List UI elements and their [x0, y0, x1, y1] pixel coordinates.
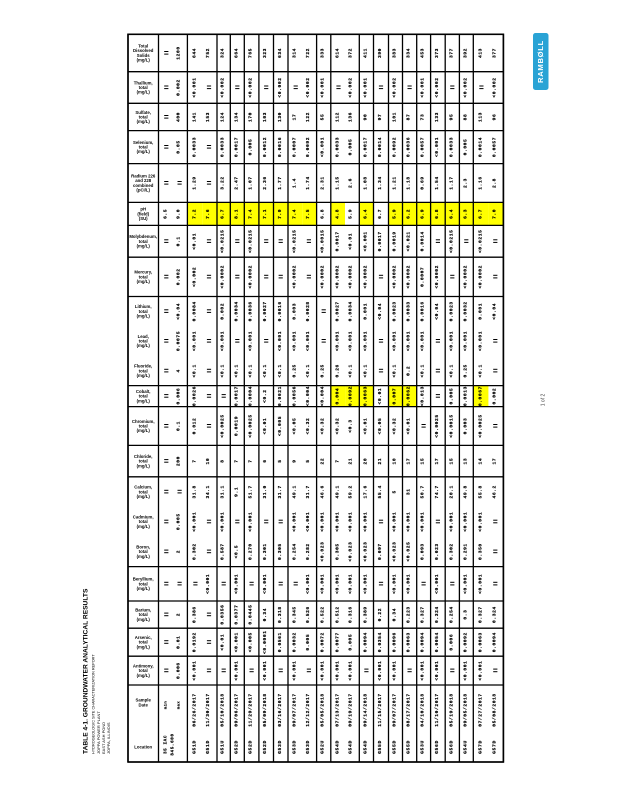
svg-text:06/26/2017: 06/26/2017: [191, 693, 197, 727]
svg-text:0.386: 0.386: [191, 606, 197, 623]
svg-text:<0.001: <0.001: [292, 661, 298, 681]
svg-text:7: 7: [233, 459, 239, 462]
svg-text:0.002: 0.002: [176, 268, 182, 285]
svg-text:0.1: 0.1: [176, 421, 182, 431]
svg-text:722: 722: [305, 48, 311, 58]
svg-text:<0.001: <0.001: [335, 512, 341, 532]
svg-text:31.0: 31.0: [262, 485, 268, 498]
svg-text:31.7: 31.7: [305, 485, 311, 498]
svg-text:0.007: 0.007: [392, 388, 398, 405]
svg-text:G53U: G53U: [420, 740, 426, 754]
svg-text:0.01: 0.01: [176, 635, 182, 648]
svg-text:0.301: 0.301: [262, 543, 268, 560]
svg-text:0.0027: 0.0027: [335, 301, 341, 321]
svg-text:97: 97: [377, 114, 383, 121]
svg-text:<0.0002: <0.0002: [348, 265, 354, 289]
svg-text:<0.002: <0.002: [392, 77, 398, 97]
svg-text:G53D: G53D: [305, 740, 311, 754]
svg-text:8.1: 8.1: [233, 209, 239, 219]
svg-text:0.0356: 0.0356: [220, 605, 226, 625]
svg-text:411: 411: [362, 48, 368, 58]
svg-text:<0.1: <0.1: [248, 364, 254, 377]
svg-text:2.8: 2.8: [491, 178, 497, 188]
svg-text:49.1: 49.1: [335, 485, 341, 498]
svg-text:5.9: 5.9: [392, 209, 398, 219]
svg-text:<0.001: <0.001: [477, 574, 483, 594]
svg-text:15: 15: [448, 458, 454, 465]
svg-text:<0.1: <0.1: [233, 364, 239, 377]
svg-text:<0.001: <0.001: [420, 661, 426, 681]
svg-text:0.305: 0.305: [277, 543, 283, 560]
svg-text:34.1: 34.1: [205, 485, 211, 498]
svg-text:644: 644: [191, 48, 197, 58]
svg-text:TABLE 4-1. GROUNDWATER ANALYTI: TABLE 4-1. GROUNDWATER ANALYTICAL RESULT…: [83, 588, 90, 754]
svg-text:G51U: G51U: [220, 740, 226, 754]
svg-text:<0.001: <0.001: [191, 512, 197, 532]
svg-text:55.4: 55.4: [377, 485, 383, 498]
svg-text:<0.0215: <0.0215: [448, 230, 454, 254]
svg-text:<0.001: <0.001: [233, 574, 239, 594]
svg-text:7: 7: [335, 459, 341, 462]
svg-text:G56D: G56D: [434, 740, 440, 754]
svg-text:<0.0215: <0.0215: [477, 230, 483, 254]
svg-text:<0.001: <0.001: [377, 661, 383, 681]
svg-text:22: 22: [320, 458, 326, 465]
svg-text:<0.001: <0.001: [477, 661, 483, 681]
svg-text:6.3: 6.3: [462, 209, 468, 219]
svg-text:6.7: 6.7: [377, 209, 383, 219]
svg-text:07/13/2017: 07/13/2017: [335, 693, 341, 727]
svg-text:6.8: 6.8: [320, 209, 326, 219]
svg-text:<0.0002: <0.0002: [320, 265, 326, 289]
svg-text:17: 17: [292, 114, 298, 121]
svg-text:323: 323: [262, 48, 268, 58]
svg-text:6.9: 6.9: [420, 209, 426, 219]
svg-text:0.0096: 0.0096: [392, 632, 398, 652]
svg-text:0.0063: 0.0063: [362, 386, 368, 406]
svg-text:<0.001: <0.001: [348, 661, 354, 681]
svg-text:<0.0001: <0.0001: [262, 630, 268, 654]
svg-text:<0.001: <0.001: [420, 331, 426, 351]
svg-text:0.0023: 0.0023: [392, 301, 398, 321]
svg-text:max: max: [178, 701, 182, 709]
svg-text:08/17/2017: 08/17/2017: [406, 693, 412, 727]
svg-text:<0.002: <0.002: [220, 77, 226, 97]
svg-text:0.0017: 0.0017: [362, 137, 368, 157]
svg-text:0.327: 0.327: [420, 606, 426, 623]
svg-text:<0.005: <0.005: [277, 416, 283, 436]
svg-text:<0.001: <0.001: [191, 77, 197, 97]
svg-text:333: 333: [320, 48, 326, 58]
svg-text:<0.001: <0.001: [362, 574, 368, 594]
svg-text:(mg/L): (mg/L): [137, 398, 151, 403]
svg-text:0.318: 0.318: [277, 606, 283, 623]
svg-text:<0.01: <0.01: [362, 418, 368, 435]
svg-text:G51D: G51D: [205, 740, 211, 754]
svg-text:0.327: 0.327: [477, 606, 483, 623]
svg-text:<0.0002: <0.0002: [462, 265, 468, 289]
svg-text:G54D: G54D: [362, 740, 368, 754]
svg-text:0.0077: 0.0077: [335, 632, 341, 652]
svg-text:<0.1: <0.1: [220, 364, 226, 377]
svg-text:31.7: 31.7: [277, 485, 283, 498]
svg-text:0.0084: 0.0084: [191, 301, 197, 321]
svg-text:0.002: 0.002: [220, 303, 226, 320]
svg-text:<0.001: <0.001: [305, 574, 311, 594]
svg-text:<0.002: <0.002: [434, 77, 440, 97]
svg-text:<0.002: <0.002: [462, 77, 468, 97]
svg-text:0.25: 0.25: [320, 364, 326, 377]
svg-text:<0.001: <0.001: [292, 331, 298, 351]
svg-text:G55D: G55D: [406, 740, 412, 754]
svg-text:15: 15: [420, 458, 426, 465]
svg-text:0.0445: 0.0445: [248, 605, 254, 625]
svg-text:0.0014: 0.0014: [420, 231, 426, 251]
svg-text:0.0033: 0.0033: [406, 301, 412, 321]
svg-text:<0.023: <0.023: [362, 542, 368, 562]
svg-text:<0.0002: <0.0002: [248, 265, 254, 289]
svg-text:G53D: G53D: [277, 740, 283, 754]
svg-text:0.004: 0.004: [335, 388, 341, 405]
svg-text:200: 200: [176, 456, 182, 466]
svg-text:<0.001: <0.001: [220, 512, 226, 532]
svg-text:0.522: 0.522: [320, 606, 326, 623]
svg-text:<0.001: <0.001: [420, 512, 426, 532]
svg-text:<0.001: <0.001: [362, 331, 368, 351]
svg-text:<0.001: <0.001: [248, 331, 254, 351]
svg-text:4.8: 4.8: [335, 209, 341, 219]
svg-text:09/19/2017: 09/19/2017: [348, 693, 354, 727]
svg-text:20: 20: [362, 458, 368, 465]
svg-text:0.0092: 0.0092: [392, 137, 398, 157]
svg-text:<0.01: <0.01: [406, 418, 412, 435]
svg-text:<0.05: <0.05: [292, 418, 298, 435]
svg-text:13: 13: [462, 458, 468, 465]
svg-text:<0.0002: <0.0002: [392, 265, 398, 289]
svg-text:<0.001: <0.001: [233, 632, 239, 652]
svg-text:G52D: G52D: [262, 740, 268, 754]
svg-text:7.1: 7.1: [262, 209, 268, 219]
svg-text:<0.023: <0.023: [348, 542, 354, 562]
svg-text:31.1: 31.1: [220, 485, 226, 498]
svg-text:(mg/L): (mg/L): [137, 58, 151, 63]
svg-text:<0.001: <0.001: [348, 574, 354, 594]
svg-text:<0.01: <0.01: [262, 418, 268, 435]
svg-text:<0.04: <0.04: [176, 303, 182, 320]
svg-text:400: 400: [176, 112, 182, 122]
svg-text:0.69: 0.69: [420, 176, 426, 189]
svg-text:<0.0002: <0.0002: [362, 265, 368, 289]
svg-text:0.005: 0.005: [348, 139, 354, 156]
svg-text:0.0012: 0.0012: [262, 137, 268, 157]
svg-text:<0.001: <0.001: [262, 661, 268, 681]
svg-text:50.7: 50.7: [420, 485, 426, 498]
svg-text:0.005: 0.005: [305, 634, 311, 651]
svg-text:1.77: 1.77: [277, 176, 283, 189]
svg-text:<0.001: <0.001: [477, 512, 483, 532]
svg-text:<0.001: <0.001: [392, 574, 398, 594]
svg-text:1.4: 1.4: [292, 178, 298, 188]
svg-text:141: 141: [191, 112, 197, 122]
svg-text:170: 170: [248, 112, 254, 122]
svg-text:0.34: 0.34: [392, 608, 398, 621]
svg-text:<0.32: <0.32: [335, 418, 341, 435]
svg-text:<0.1: <0.1: [420, 364, 426, 377]
svg-text:07/27/2017: 07/27/2017: [477, 693, 483, 727]
svg-text:<0.002: <0.002: [191, 267, 197, 287]
svg-text:383: 383: [392, 48, 398, 58]
svg-text:20.1: 20.1: [448, 485, 454, 498]
svg-text:0.254: 0.254: [292, 543, 298, 560]
svg-text:11/29/2017: 11/29/2017: [248, 693, 254, 727]
svg-text:G57D: G57D: [477, 740, 483, 754]
svg-text:124: 124: [220, 112, 226, 122]
svg-text:5: 5: [392, 490, 398, 493]
svg-text:<0.1: <0.1: [448, 364, 454, 377]
svg-text:<0.002: <0.002: [348, 77, 354, 97]
svg-text:35 IAC: 35 IAC: [164, 735, 169, 754]
svg-text:130: 130: [277, 112, 283, 122]
svg-text:0.0072: 0.0072: [320, 632, 326, 652]
svg-text:<0.3: <0.3: [348, 419, 354, 432]
svg-text:1.15: 1.15: [335, 176, 341, 189]
svg-text:7: 7: [248, 459, 254, 462]
svg-text:<0.001: <0.001: [191, 331, 197, 351]
svg-text:0.093: 0.093: [420, 543, 426, 560]
svg-text:0.0014: 0.0014: [377, 137, 383, 157]
svg-text:0.0033: 0.0033: [191, 137, 197, 157]
svg-text:<0.021: <0.021: [406, 231, 412, 251]
svg-text:96: 96: [491, 114, 497, 121]
svg-text:55.8: 55.8: [477, 485, 483, 498]
svg-text:<0.32: <0.32: [320, 418, 326, 435]
svg-text:55: 55: [320, 114, 326, 121]
svg-text:0.0014: 0.0014: [477, 137, 483, 157]
svg-text:0.0094: 0.0094: [491, 632, 497, 652]
svg-text:0.0062: 0.0062: [406, 386, 412, 406]
svg-text:<0.001: <0.001: [477, 331, 483, 351]
svg-text:<0.001: <0.001: [305, 331, 311, 351]
svg-text:0.0354: 0.0354: [377, 632, 383, 652]
svg-text:0.0034: 0.0034: [233, 301, 239, 321]
svg-text:392: 392: [462, 48, 468, 58]
svg-text:21: 21: [377, 458, 383, 465]
svg-text:0.324: 0.324: [434, 606, 440, 623]
svg-text:0.0033: 0.0033: [448, 137, 454, 157]
svg-text:7.4: 7.4: [292, 209, 298, 219]
svg-text:0.1: 0.1: [176, 236, 182, 246]
svg-text:2: 2: [176, 613, 182, 616]
svg-text:Location: Location: [134, 745, 152, 750]
svg-text:1.07: 1.07: [248, 176, 254, 189]
svg-text:0.0192: 0.0192: [191, 632, 197, 652]
svg-text:11/10/2017: 11/10/2017: [434, 693, 440, 727]
svg-text:<0.0025: <0.0025: [248, 414, 254, 438]
svg-text:(mg/L): (mg/L): [137, 90, 151, 95]
svg-text:<0.001: <0.001: [406, 331, 412, 351]
svg-text:11/30/2017: 11/30/2017: [205, 693, 211, 727]
svg-text:G57D: G57D: [491, 740, 497, 754]
svg-text:<0.001: <0.001: [320, 137, 326, 157]
svg-text:<0.1: <0.1: [348, 364, 354, 377]
svg-text:0.0007: 0.0007: [292, 137, 298, 157]
svg-text:<0.004: <0.004: [320, 386, 326, 406]
svg-text:(mg/L): (mg/L): [137, 119, 151, 124]
svg-text:88: 88: [462, 114, 468, 121]
svg-text:<0.001: <0.001: [434, 574, 440, 594]
svg-text:10: 10: [392, 458, 398, 465]
svg-text:0.0561: 0.0561: [277, 632, 283, 652]
svg-text:<0.0215: <0.0215: [248, 230, 254, 254]
svg-text:G52D: G52D: [233, 740, 239, 754]
svg-text:04/10/2018: 04/10/2018: [420, 693, 426, 727]
svg-text:<0.002: <0.002: [248, 77, 254, 97]
svg-text:49.1: 49.1: [292, 485, 298, 498]
svg-text:11/15/2017: 11/15/2017: [377, 693, 383, 727]
svg-text:95: 95: [448, 114, 454, 121]
svg-text:101: 101: [392, 112, 398, 122]
svg-text:(mg/L): (mg/L): [137, 373, 151, 378]
svg-text:324: 324: [220, 48, 226, 58]
svg-text:<0.013: <0.013: [420, 386, 426, 406]
svg-text:7: 7: [191, 459, 197, 462]
svg-text:<0.0015: <0.0015: [320, 230, 326, 254]
svg-text:1.34: 1.34: [377, 176, 383, 189]
svg-text:7.5: 7.5: [305, 209, 311, 219]
svg-text:153: 153: [205, 112, 211, 122]
svg-text:6.7: 6.7: [220, 209, 226, 219]
svg-text:(mg/L): (mg/L): [137, 554, 151, 559]
svg-text:0.0034: 0.0034: [348, 301, 354, 321]
svg-text:<0.04: <0.04: [491, 303, 497, 320]
svg-text:0.005: 0.005: [348, 634, 354, 651]
svg-text:0.0092: 0.0092: [462, 632, 468, 652]
svg-text:0.005: 0.005: [462, 139, 468, 156]
svg-text:<0.002: <0.002: [305, 77, 311, 97]
svg-text:0.0036: 0.0036: [248, 301, 254, 321]
svg-text:0.0057: 0.0057: [420, 137, 426, 157]
svg-text:<0.01: <0.01: [348, 233, 354, 250]
svg-text:0.350: 0.350: [477, 543, 483, 560]
svg-text:<0.001: <0.001: [335, 574, 341, 594]
svg-text:0.0056: 0.0056: [292, 386, 298, 406]
svg-text:0.0019: 0.0019: [392, 231, 398, 251]
svg-text:<0.001: <0.001: [220, 331, 226, 351]
svg-text:<0.0002: <0.0002: [477, 265, 483, 289]
svg-text:0.005: 0.005: [248, 139, 254, 156]
svg-text:<0.0002: <0.0002: [292, 265, 298, 289]
svg-text:0.0067: 0.0067: [477, 386, 483, 406]
svg-text:0.0092: 0.0092: [305, 137, 311, 157]
svg-text:(mg/L): (mg/L): [137, 244, 151, 249]
svg-text:0.0007: 0.0007: [420, 267, 426, 287]
svg-text:0.0054: 0.0054: [434, 632, 440, 652]
svg-text:<0.32: <0.32: [392, 418, 398, 435]
svg-text:1.29: 1.29: [191, 176, 197, 189]
svg-text:6.2: 6.2: [406, 209, 412, 219]
svg-text:31: 31: [406, 488, 412, 495]
svg-text:G54D: G54D: [335, 740, 341, 754]
svg-text:<0.01: <0.01: [191, 233, 197, 250]
svg-text:752: 752: [205, 48, 211, 58]
svg-text:390: 390: [377, 48, 383, 58]
svg-text:59.2: 59.2: [348, 485, 354, 498]
svg-text:<0.0002: <0.0002: [220, 265, 226, 289]
svg-text:0.0032: 0.0032: [292, 632, 298, 652]
svg-text:0.25: 0.25: [462, 364, 468, 377]
svg-text:765: 765: [248, 48, 254, 58]
svg-text:0.2: 0.2: [406, 366, 412, 376]
svg-text:1200: 1200: [176, 46, 182, 59]
svg-text:46.6: 46.6: [320, 485, 326, 498]
svg-text:G52D: G52D: [248, 740, 254, 754]
svg-text:2.31: 2.31: [320, 176, 326, 189]
svg-text:49.8: 49.8: [462, 485, 468, 498]
svg-text:<0.0025: <0.0025: [434, 414, 440, 438]
svg-text:614: 614: [335, 48, 341, 58]
svg-text:(mg/L): (mg/L): [137, 428, 151, 433]
svg-text:7.4: 7.4: [248, 209, 254, 219]
svg-text:0.223: 0.223: [406, 606, 412, 623]
svg-text:413: 413: [477, 48, 483, 58]
svg-text:0.22: 0.22: [377, 608, 383, 621]
svg-text:(mg/L): (mg/L): [137, 673, 151, 678]
svg-text:0.26: 0.26: [335, 364, 341, 377]
svg-text:0.006: 0.006: [448, 634, 454, 651]
svg-text:<0.001: <0.001: [292, 512, 298, 532]
svg-text:6.4: 6.4: [362, 209, 368, 219]
svg-text:0.526: 0.526: [305, 606, 311, 623]
svg-text:103: 103: [262, 112, 268, 122]
svg-text:0.0032: 0.0032: [462, 301, 468, 321]
svg-text:0.006: 0.006: [176, 388, 182, 405]
svg-text:0.0377: 0.0377: [233, 605, 239, 625]
svg-text:<0.001: <0.001: [448, 512, 454, 532]
svg-text:Date: Date: [139, 703, 149, 708]
svg-text:0.0092: 0.0092: [348, 386, 354, 406]
svg-text:(pCi/L): (pCi/L): [136, 188, 150, 193]
svg-text:<0.001: <0.001: [335, 331, 341, 351]
svg-text:6: 6: [262, 459, 268, 462]
svg-text:0.0033: 0.0033: [220, 137, 226, 157]
svg-text:373: 373: [434, 48, 440, 58]
svg-text:<0.002: <0.002: [277, 77, 283, 97]
svg-text:G54U: G54U: [462, 740, 468, 754]
svg-text:0.25: 0.25: [292, 364, 298, 377]
svg-text:<0.05: <0.05: [377, 418, 383, 435]
svg-text:0.587: 0.587: [220, 543, 226, 560]
svg-text:<0.001: <0.001: [406, 574, 412, 594]
svg-text:664: 664: [233, 48, 239, 58]
svg-text:1.18: 1.18: [406, 176, 412, 189]
svg-text:<0.001: <0.001: [362, 512, 368, 532]
svg-text:0.0027: 0.0027: [262, 301, 268, 321]
svg-text:(mg/L): (mg/L): [137, 343, 151, 348]
svg-text:RAMBØLL: RAMBØLL: [536, 40, 545, 83]
svg-text:0.512: 0.512: [335, 606, 341, 623]
svg-text:845.600: 845.600: [171, 733, 176, 755]
svg-text:51.7: 51.7: [248, 485, 254, 498]
svg-text:0.005: 0.005: [176, 513, 182, 530]
svg-text:9: 9: [292, 459, 298, 462]
svg-text:0.023: 0.023: [434, 543, 440, 560]
svg-text:<0.32: <0.32: [305, 418, 311, 435]
svg-text:74.7: 74.7: [434, 485, 440, 498]
svg-text:0.0026: 0.0026: [191, 386, 197, 406]
svg-text:<0.001: <0.001: [462, 574, 468, 594]
svg-text:21: 21: [348, 458, 354, 465]
svg-text:0.302: 0.302: [191, 543, 197, 560]
